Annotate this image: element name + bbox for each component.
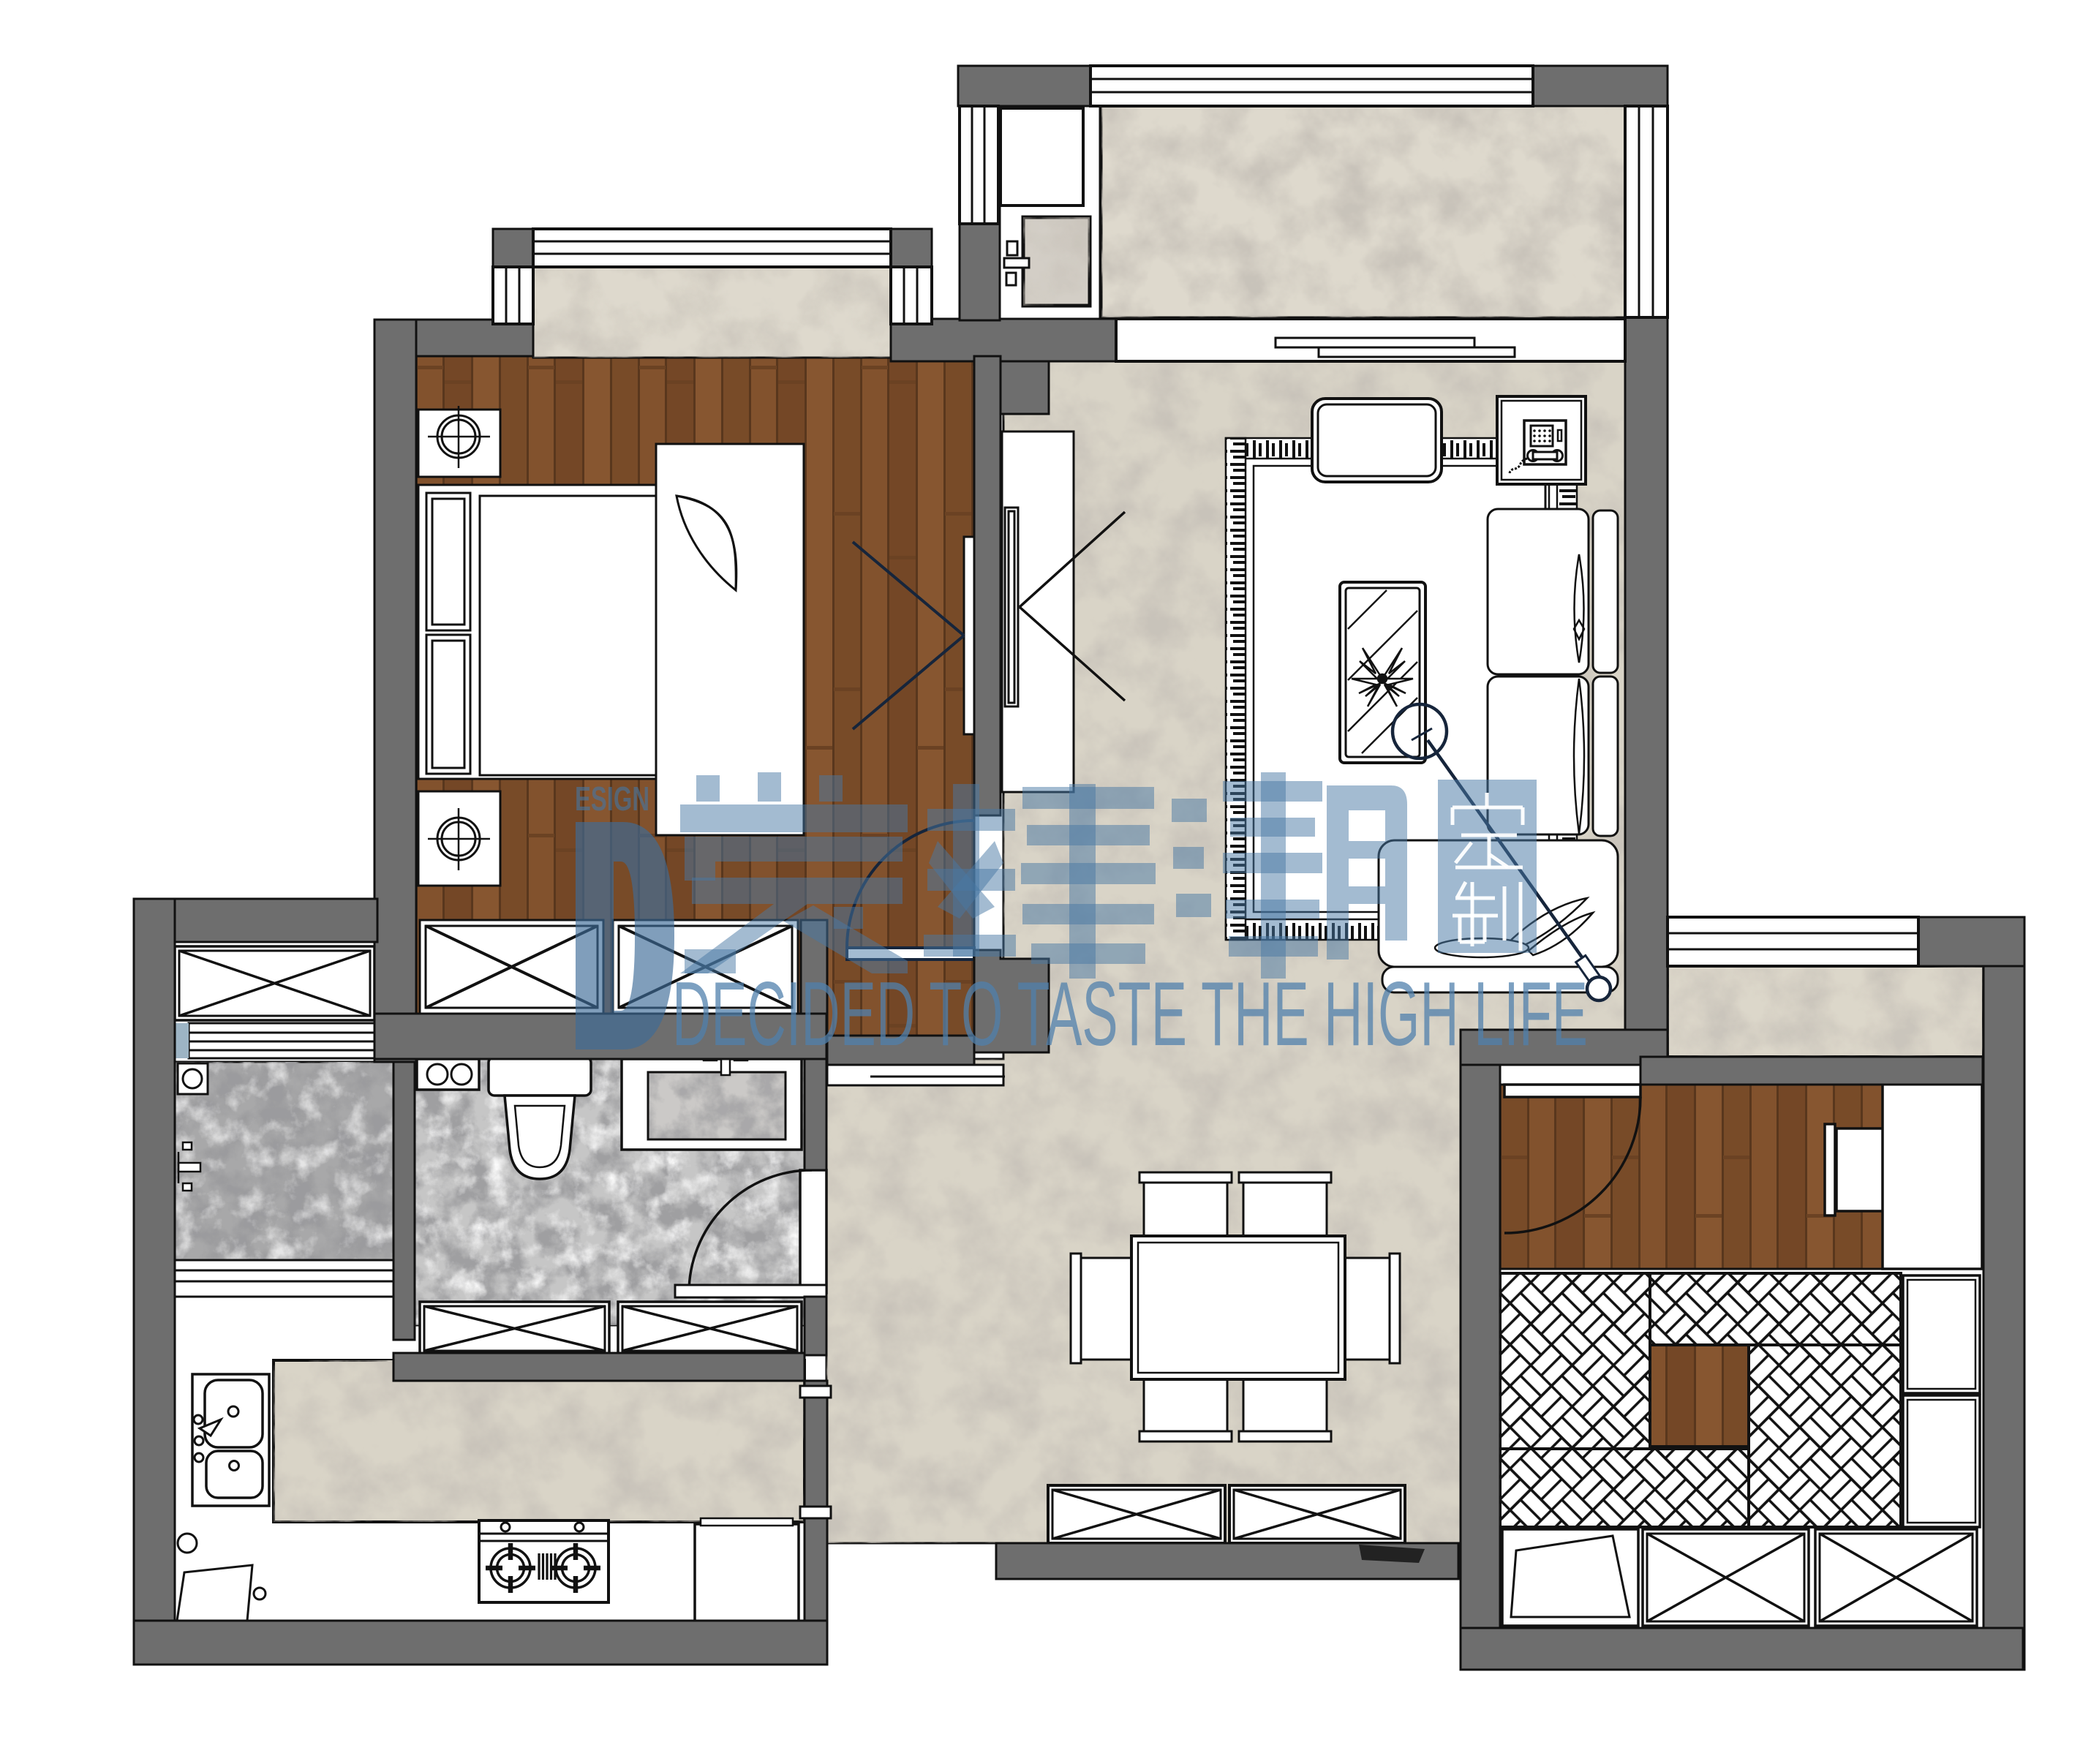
svg-text:ESIGN: ESIGN: [575, 780, 649, 818]
svg-text:DECIDED TO TASTE THE HIGH LIFE: DECIDED TO TASTE THE HIGH LIFE: [672, 964, 1588, 1065]
